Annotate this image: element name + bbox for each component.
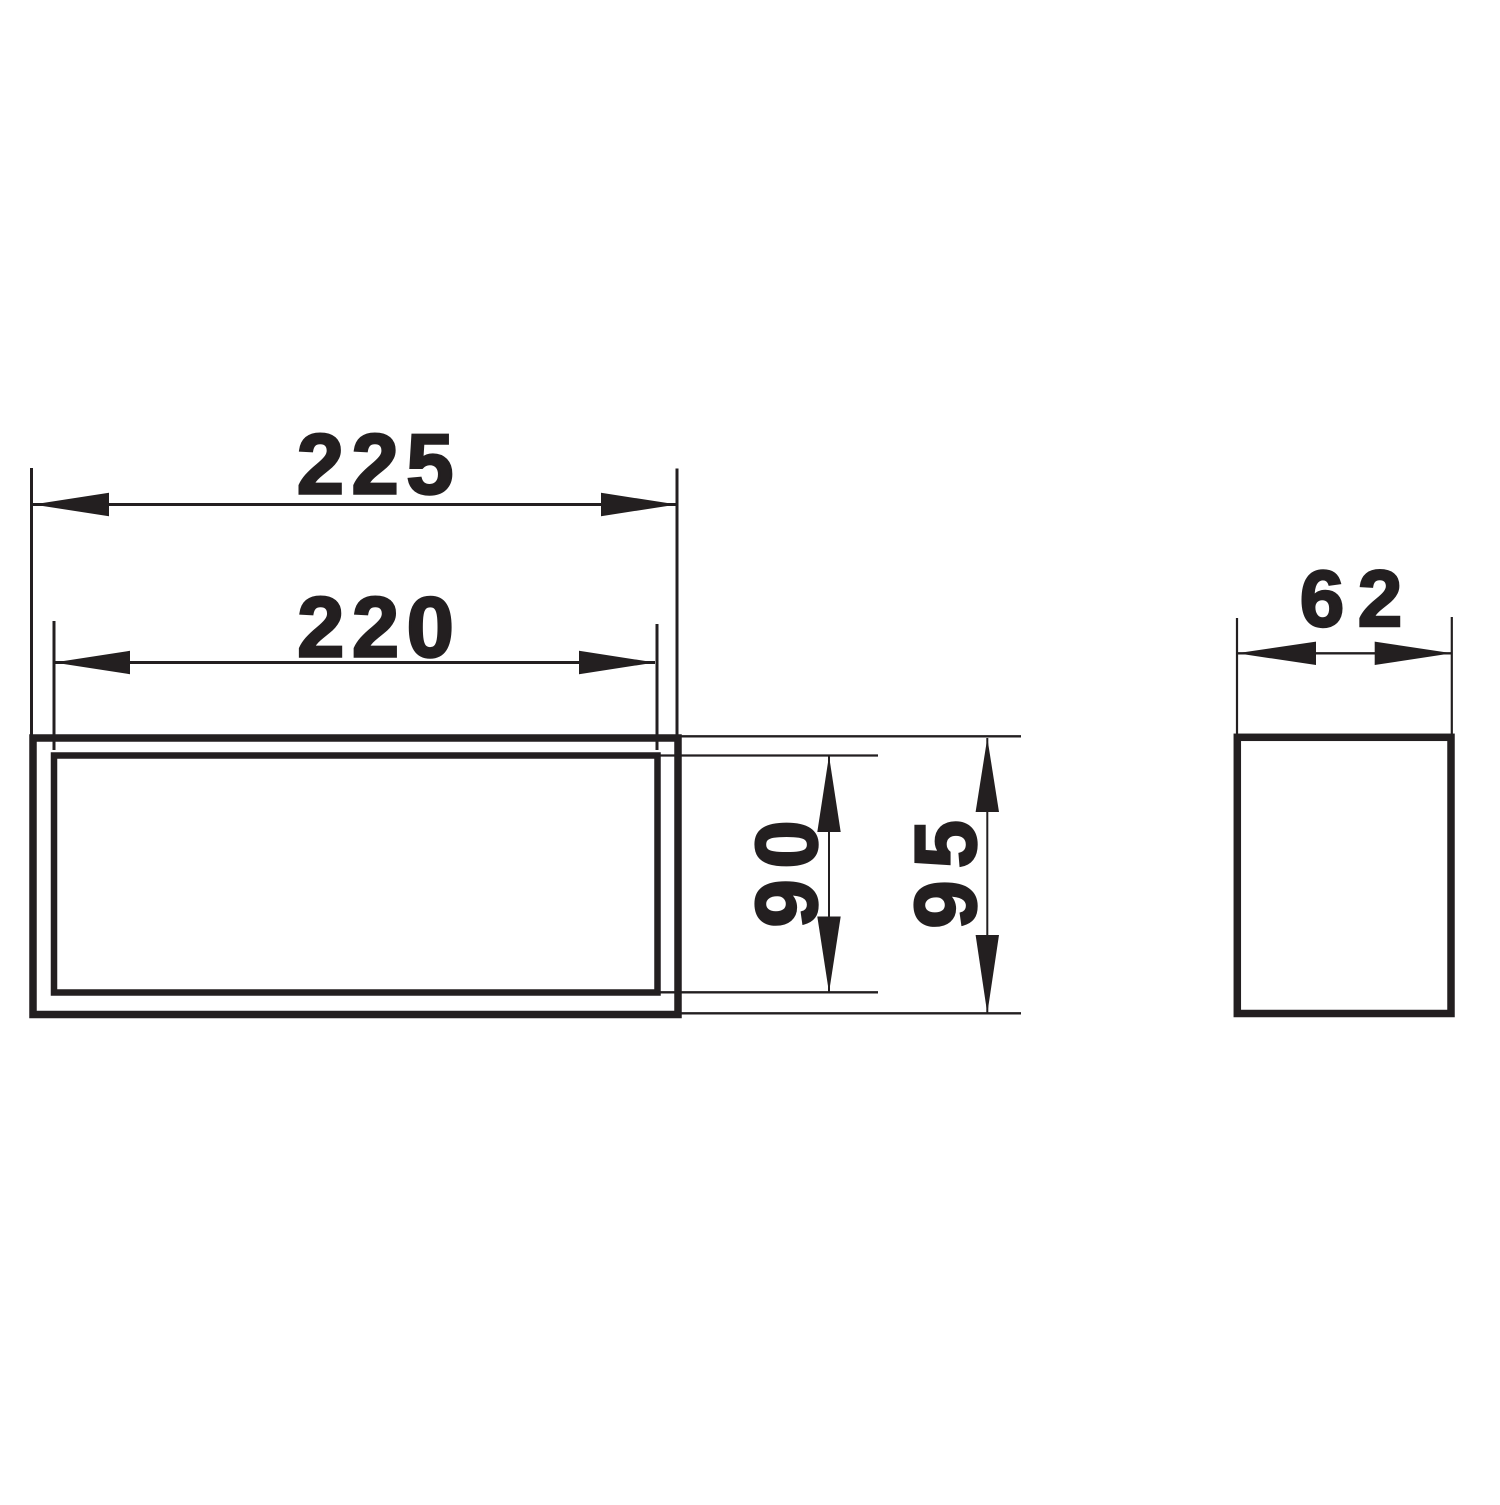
svg-text:220: 220: [297, 581, 461, 676]
svg-text:90: 90: [738, 810, 835, 928]
svg-text:225: 225: [297, 418, 461, 513]
svg-text:95: 95: [897, 808, 994, 929]
svg-text:62: 62: [1300, 554, 1416, 643]
